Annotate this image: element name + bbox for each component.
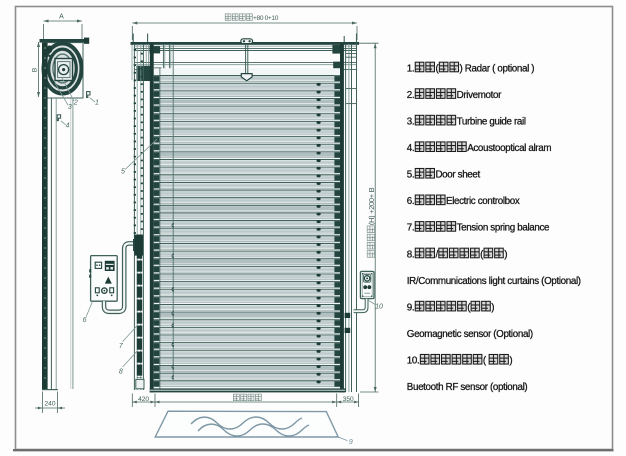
svg-text:5: 5	[121, 169, 125, 176]
svg-text:) Radar ( optional ): ) Radar ( optional )	[460, 63, 535, 74]
svg-text:3.: 3.	[407, 116, 414, 127]
svg-text:420: 420	[138, 396, 149, 403]
svg-text:5.: 5.	[407, 170, 414, 181]
svg-text:240: 240	[44, 401, 55, 408]
svg-text:8: 8	[119, 369, 123, 376]
svg-text:6: 6	[83, 317, 87, 324]
svg-text:Electric controlbox: Electric controlbox	[446, 196, 520, 207]
svg-text:Tension spring balance: Tension spring balance	[457, 223, 550, 234]
svg-text:Geomagnetic sensor (Optional): Geomagnetic sensor (Optional)	[407, 329, 533, 340]
svg-text:8.: 8.	[407, 249, 414, 260]
svg-text:7.: 7.	[407, 223, 414, 234]
svg-text:4: 4	[66, 123, 70, 130]
svg-text:4.: 4.	[407, 143, 414, 154]
svg-text:IR/Communications light curtai: IR/Communications light curtains (Option…	[407, 276, 581, 287]
svg-text:): )	[504, 249, 507, 260]
svg-text:): )	[491, 302, 494, 313]
svg-text:9.: 9.	[407, 302, 414, 313]
svg-text:9: 9	[349, 439, 353, 446]
svg-text:1: 1	[95, 100, 99, 107]
svg-text:Drivemotor: Drivemotor	[457, 90, 502, 101]
svg-text:10: 10	[375, 304, 383, 311]
svg-text:Door sheet: Door sheet	[435, 170, 480, 181]
svg-text:1.: 1.	[407, 63, 414, 74]
svg-text:10.: 10.	[407, 356, 420, 367]
svg-text:(H) +200+ B: (H) +200+ B	[367, 187, 376, 225]
svg-text:6.: 6.	[407, 196, 414, 207]
svg-text:Buetooth RF sensor (optional): Buetooth RF sensor (optional)	[407, 382, 528, 393]
svg-text:A: A	[59, 14, 64, 21]
svg-text:2: 2	[73, 100, 78, 107]
svg-text:3: 3	[68, 104, 72, 111]
svg-text:Turbine guide rail: Turbine guide rail	[457, 116, 526, 127]
svg-text:+80 0+10: +80 0+10	[253, 15, 279, 22]
svg-text:B: B	[32, 68, 39, 72]
svg-text:350: 350	[343, 396, 354, 403]
svg-text:): )	[509, 356, 512, 367]
svg-text:Acoustooptical alram: Acoustooptical alram	[467, 143, 551, 154]
svg-text:2.: 2.	[407, 90, 414, 101]
